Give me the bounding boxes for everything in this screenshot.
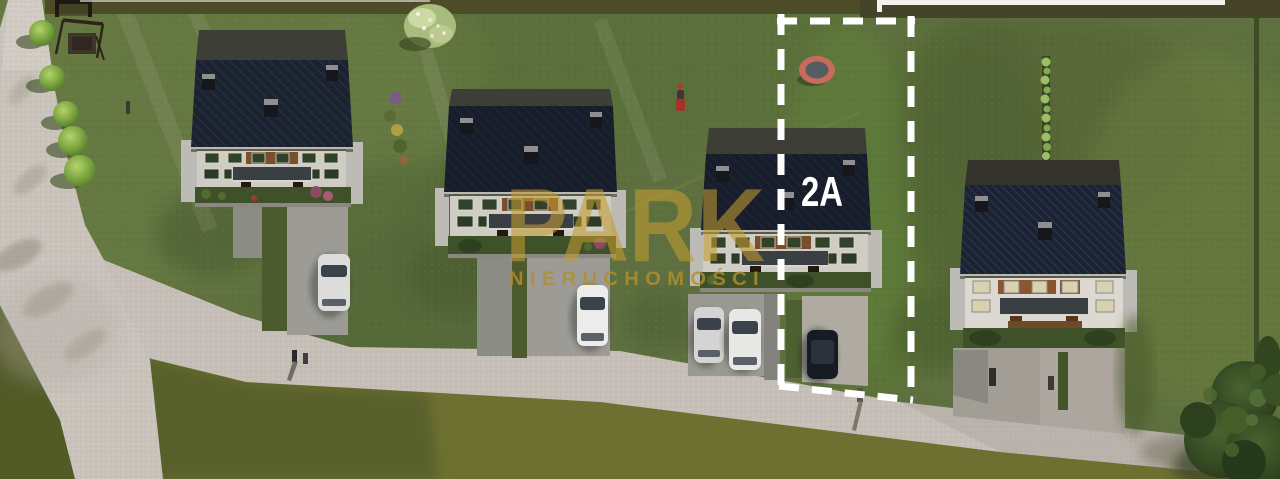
svg-text:2A: 2A <box>801 168 843 215</box>
svg-text:NIERUCHOMOŚCI: NIERUCHOMOŚCI <box>509 268 765 290</box>
svg-text:PARK: PARK <box>505 168 765 284</box>
